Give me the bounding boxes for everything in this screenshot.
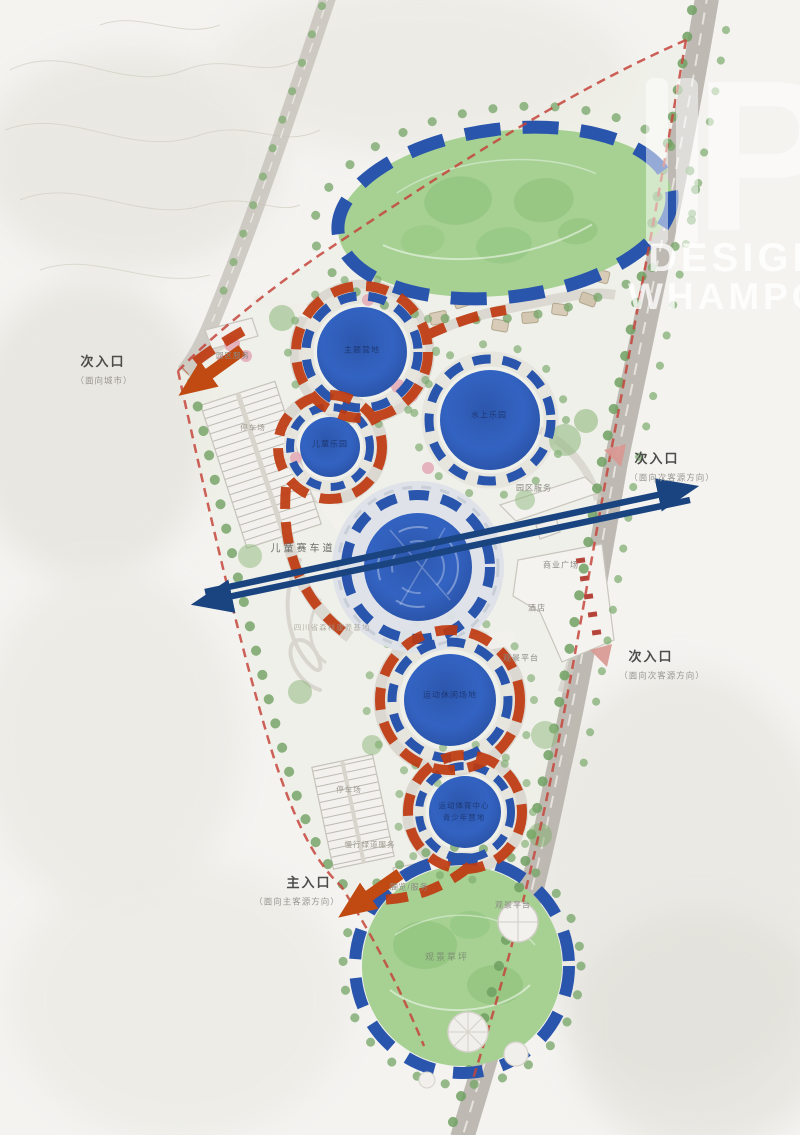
masterplan-canvas: P DESIGN WHAMPOA 次入口 （面向城市） 次入口 （面向次客源方向…: [0, 0, 800, 1135]
pond-5: [404, 654, 496, 746]
pond-6: [429, 776, 501, 848]
pond-3: [300, 417, 360, 477]
masterplan-map: [0, 0, 800, 1135]
pond-2: [440, 370, 540, 470]
pond-1: [317, 307, 407, 397]
